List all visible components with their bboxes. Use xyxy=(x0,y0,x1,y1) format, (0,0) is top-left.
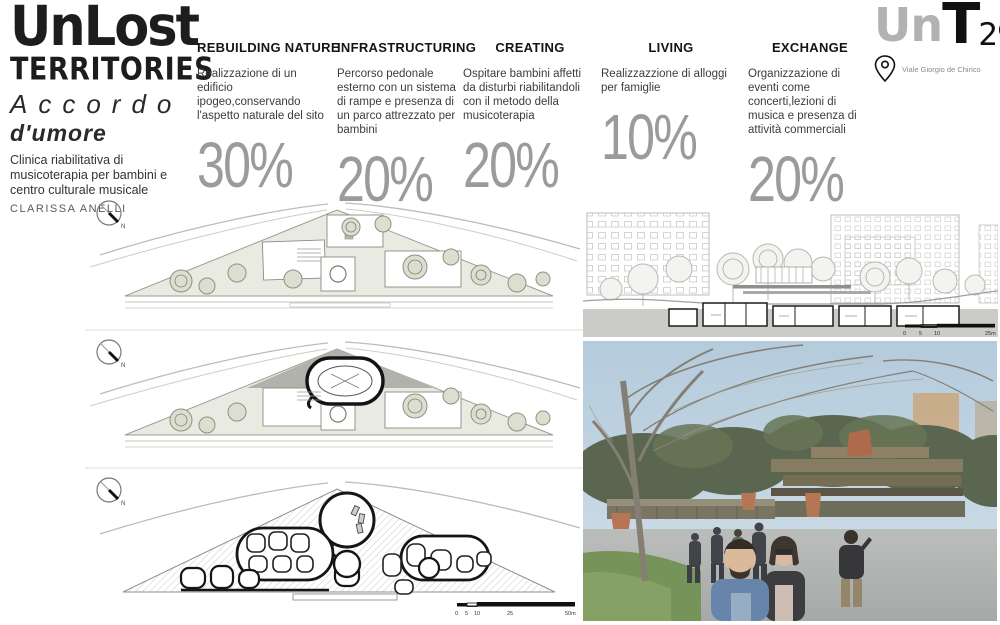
unt29-logo: Un T 29 Viale Giorgio de Chirico xyxy=(874,2,996,83)
compass-icon: N xyxy=(97,478,125,507)
concept-column-infrastructuring: INFRASTRUCTURING Percorso pedonale ester… xyxy=(337,40,467,209)
scale-label: 10 xyxy=(934,331,940,337)
column-percentage: 10% xyxy=(601,101,724,175)
column-header: REBUILDING NATURE xyxy=(197,40,333,55)
site-plan-ground-level: N xyxy=(85,336,585,475)
scale-label: 25m xyxy=(985,331,996,337)
compass-north-label: N xyxy=(121,501,125,507)
project-title-line1: UnLost xyxy=(10,2,200,54)
column-percentage: 20% xyxy=(463,129,581,203)
scale-label: 0 xyxy=(455,611,458,617)
column-description: Realizzazione di un edificio ipogeo,cons… xyxy=(197,67,333,123)
photomontage-render xyxy=(583,341,997,625)
column-header: CREATING xyxy=(463,40,597,55)
project-description: Clinica riabilitativa di musicoterapia p… xyxy=(10,153,200,197)
title-block: UnLost TERRITORIES Accordo d'umore Clini… xyxy=(10,2,200,215)
column-description: Percorso pedonale esterno con un sistema… xyxy=(337,67,467,137)
concept-column-living: LIVING Realizzazzione di alloggi per fam… xyxy=(601,40,741,167)
project-subtitle-2: d'umore xyxy=(10,120,200,147)
plan-scale-bar: 0 5 10 25 50m xyxy=(455,598,580,623)
compass-north-label: N xyxy=(121,224,125,230)
scale-label: 10 xyxy=(474,611,480,617)
scale-label: 25 xyxy=(507,611,513,617)
column-header: LIVING xyxy=(601,40,741,55)
column-percentage: 30% xyxy=(197,129,317,203)
concept-column-creating: CREATING Ospitare bambini affetti da dis… xyxy=(463,40,597,195)
location-pin-icon xyxy=(874,55,896,83)
logo-29-text: 29 xyxy=(978,20,1000,51)
logo-un-text: Un xyxy=(874,2,942,48)
presentation-board: UnLost TERRITORIES Accordo d'umore Clini… xyxy=(0,0,1000,625)
compass-north-label: N xyxy=(121,363,125,369)
compass-icon: N xyxy=(97,201,125,230)
logo-t-text: T xyxy=(942,2,978,48)
concept-column-exchange: EXCHANGE Organizzazione di eventi come c… xyxy=(748,40,872,209)
column-description: Ospitare bambini affetti da disturbi ria… xyxy=(463,67,597,123)
scale-label: 0 xyxy=(903,331,906,337)
column-header: EXCHANGE xyxy=(748,40,872,55)
scale-label: 50m xyxy=(565,611,576,617)
compass-icon: N xyxy=(97,340,125,369)
column-description: Organizzazione di eventi come concerti,l… xyxy=(748,67,872,137)
scale-label: 5 xyxy=(465,611,468,617)
logo-address: Viale Giorgio de Chirico xyxy=(902,65,981,74)
column-description: Realizzazzione di alloggi per famiglie xyxy=(601,67,741,95)
project-title-line2: TERRITORIES xyxy=(10,54,200,85)
column-header: INFRASTRUCTURING xyxy=(337,40,467,55)
concept-column-rebuilding-nature: REBUILDING NATURE Realizzazione di un ed… xyxy=(197,40,333,195)
project-subtitle-1: Accordo xyxy=(10,89,200,120)
elevation-scale-bar: 0 5 10 25m xyxy=(903,320,998,343)
site-plan-roof-level: N xyxy=(85,197,585,338)
scale-label: 5 xyxy=(919,331,922,337)
